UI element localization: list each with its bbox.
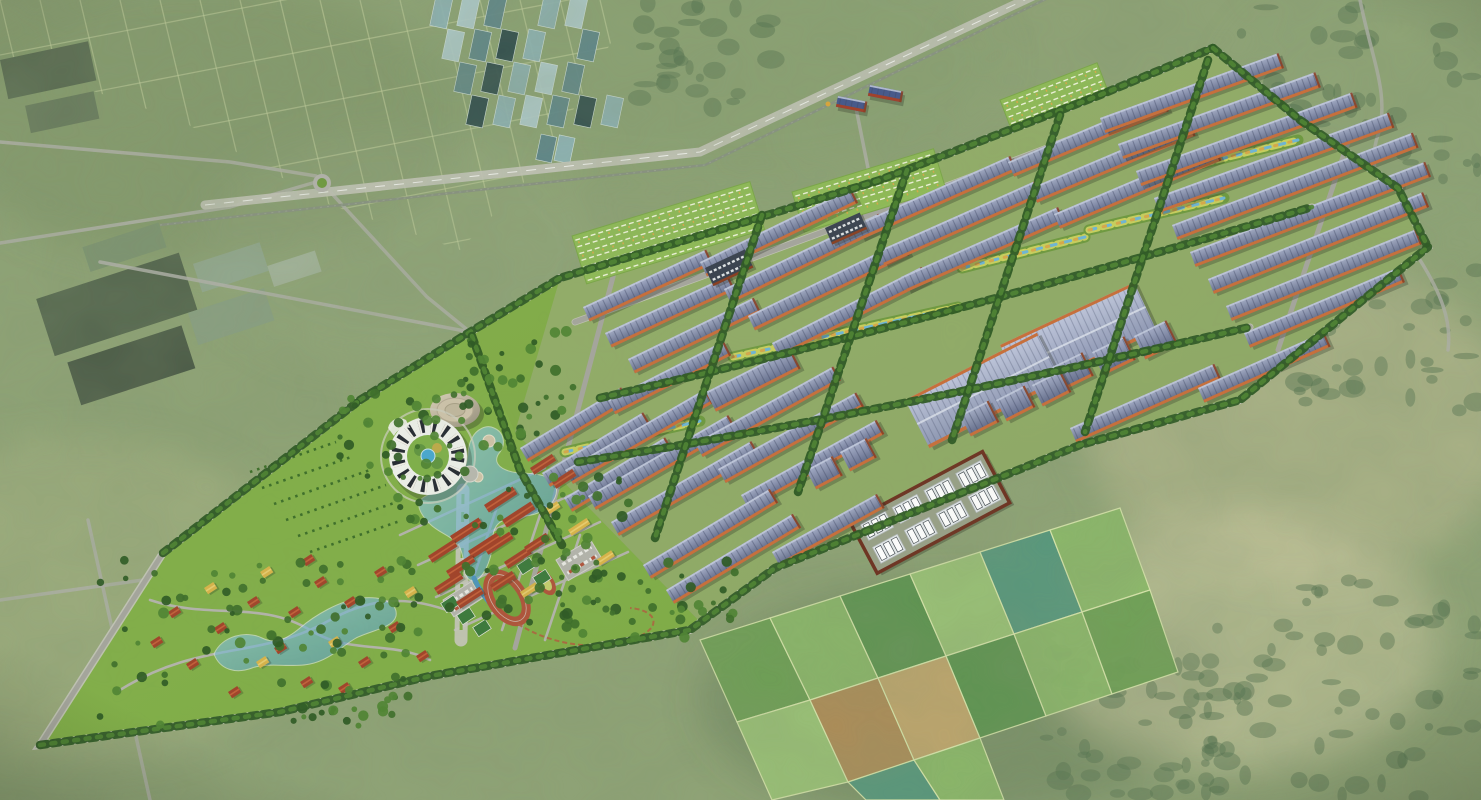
aerial-master-plan-rendering bbox=[0, 0, 1481, 800]
rendered-scene bbox=[0, 0, 1481, 800]
vignette bbox=[0, 0, 1481, 800]
